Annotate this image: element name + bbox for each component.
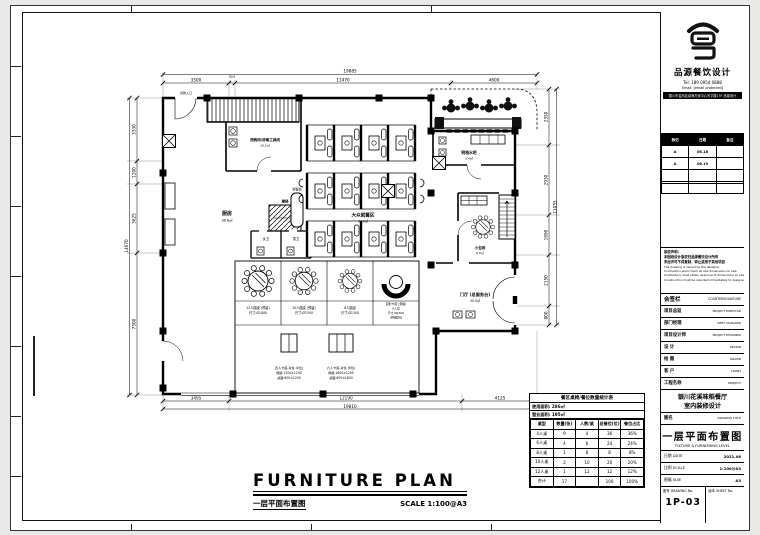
room-label-kitchen: 厨房 [222,210,232,217]
room-area-bar: 9.4㎡ [465,156,473,161]
meta-label: 比例 SCALE [664,465,685,471]
stats-cell: 6 [576,439,599,449]
drawing-number-label: 图号 DRAWING No. [663,488,703,493]
wc-rooms: 女卫 男卫 [251,229,311,258]
drawing-number-cell: 图号 DRAWING No. 1P-03 [661,487,706,523]
legend-caption: 6人位 [392,306,400,311]
goods-door: 货物入口 [175,90,197,119]
dim-left-4: 7500 [132,318,137,329]
sheet-number-label: 版本 SHEET No. [708,488,742,493]
sign-label-cn: 部门经理 [664,320,682,326]
company-tel: Tel: 189 0954 0888 [661,80,744,85]
drawing-number-value: 1P-03 [663,497,703,508]
stats-cell: 10 [576,458,599,468]
revision-row [662,170,744,182]
project-label-cn: 工程名称 [664,380,682,386]
stats-cell: 4 [553,439,576,449]
room-label-hall: 门厅 (总服务台) [460,291,490,298]
bar-room: 明档水吧 9.4㎡ [433,131,515,179]
dim-right-total: 11055 [553,200,558,214]
legend-caption: 8人圆桌 [344,305,356,310]
notes-panel: 版权声明: 本图纸设计版权归品源餐饮设计所有 未经许可不得复制、转让或用于其他项… [661,248,744,294]
stats-row: 合计17100100% [531,477,644,487]
edge-tick [11,206,21,207]
legend-caption: 桌面:600×1200 [277,375,301,380]
meta-row-size: 图幅 SIZEA3 [661,475,744,487]
drawing-title-label-en: DRAWING TITLE [717,416,741,420]
sign-label-cn: 绘 图 [664,356,674,362]
sign-label-cn: 项目总监 [664,308,682,314]
booth-seat [387,125,415,161]
booth-seat [306,221,334,257]
revision-cell: A [662,146,689,158]
project-label-row: 工程名称 PROJECT [661,378,744,390]
dim-top-total: 19885 [343,69,357,74]
revision-cell: A [662,158,689,170]
floor-plan: 19885 3500 315 11470 4600 14670 3330 120… [123,53,643,433]
terrace-area [431,89,537,133]
stats-cell: 24 [598,439,621,449]
edge-tick [131,524,132,530]
drawing-title-label-row: 图名 DRAWING TITLE [661,413,744,425]
stats-header: 数量(张) [553,420,576,430]
revision-cell: 06.18 [689,146,716,158]
sign-label-en: DEPT. MANAGER [717,321,741,325]
edge-tick [431,6,432,12]
stats-cell: 1 [553,448,576,458]
sign-label-en: DESIGN [730,345,741,349]
drawing-sheet: 19885 3500 315 11470 4600 14670 3330 120… [10,5,750,531]
legend-caption: 桌面:600×1800 [329,375,353,380]
legend-caption: 六人卡座-对坐 (6位) [327,365,355,370]
drawing-title-cn: 一层平面布置图 [661,425,744,443]
outdoor-table [480,99,498,112]
room-label-goods: 货物入口 [180,90,192,95]
dim-left-3: 3625 [132,213,137,224]
stats-header: 餐位占比 [621,420,644,430]
stats-cell: 12 [576,467,599,477]
legend-caption: 尺寸:Ø1500 [295,310,313,315]
stats-cell: 合计 [531,477,554,487]
stats-row: 8人桌1888% [531,448,644,458]
revision-cell [689,170,716,182]
edge-tick [11,66,21,67]
room-area-dishwash: 16.5㎡ [260,143,270,148]
stats-cell: 12% [621,467,644,477]
booth-seat [333,221,361,257]
stats-cell: 100 [598,477,621,487]
stats-area-2: 营业面积: 195㎡ [530,411,644,419]
sign-label-en: PROJECT DESIGNER [713,333,741,337]
room-label-stair: 楼梯 [282,199,289,204]
revision-header: 标记 [662,135,689,146]
edge-tick [491,524,492,530]
room-area-hall: 30.0㎡ [470,298,481,303]
booth-seat [333,173,361,209]
meta-value: 2021.06 [724,454,741,459]
legend-caption: 12人圆桌 (预留) [246,305,270,310]
entrance-hall: 门厅 (总服务台) 30.0㎡ [436,261,517,325]
stats-cell [576,477,599,487]
project-name-line1: 银川花溪味稻餐厅 [661,393,744,402]
sign-row-client: 客 户CLIENT [661,366,744,378]
sign-label-en: PROJECT DIRECTOR [713,309,741,313]
stats-cell: 10人桌 [531,458,554,468]
stats-cell: 36 [598,429,621,439]
left-door [161,341,183,361]
sign-row-director: 项目总监PROJECT DIRECTOR [661,306,744,318]
room-label-wc-w: 女卫 [263,236,270,241]
booth-seat [360,125,388,161]
room-label-wc-m: 男卫 [293,236,300,241]
dim-right-5: 800 [544,311,549,319]
edge-tick [11,136,21,137]
meta-row-date: 日期 DATE2021.06 [661,451,744,463]
edge-tick [11,276,21,277]
legend-caption: 10人圆桌 (预留) [292,305,316,310]
legend-caption: 弧形卡座 (预留) [386,301,407,306]
revision-cell [716,158,743,170]
meta-label: 图幅 SIZE [664,477,681,483]
dim-top-3: 11470 [336,78,350,83]
dim-bottom-total: 19810 [343,404,357,409]
outdoor-table [461,97,479,110]
company-panel: 品源餐饮设计 Tel: 189 0954 0888 Email: [email … [661,12,744,134]
booth-seat [387,221,415,257]
cashier-counter: 收银台 [291,187,303,228]
drawing-title-label-cn: 图名 [664,415,673,421]
room-label-cashier: 收银台 [292,187,302,192]
stats-cell: 4人桌 [531,429,554,439]
stats-cell: 8人桌 [531,448,554,458]
dim-bottom-3: 4125 [495,396,506,401]
stats-header: 人数/桌 [576,420,599,430]
room-label-dining: 大众就餐区 [352,212,375,219]
sheet-footer: FURNITURE PLAN 一层平面布置图 SCALE 1:100@A3 [253,471,467,510]
footer-subtitle-cn: 一层平面布置图 [253,498,306,510]
dim-top-1: 3500 [191,78,202,83]
stats-cell: 12人桌 [531,467,554,477]
stats-header: 总餐位(位) [598,420,621,430]
private-room: 小包间 6.6㎡ [456,193,515,263]
sign-label-cn: 设 计 [664,344,674,350]
company-email: Email: [email protected] [661,86,744,90]
booth-rows: 大众就餐区 94.0㎡ [299,125,424,257]
stats-cell: 8 [598,448,621,458]
footer-bar [253,494,467,497]
legend-caption: 定制软包 [390,315,402,320]
dim-right-4: 2150 [544,275,549,286]
sign-label-cn: 项目设计师 [664,332,686,338]
stats-row: 6人桌462424% [531,439,644,449]
revision-cell [716,146,743,158]
room-area-private: 6.6㎡ [476,250,484,255]
outdoor-table [442,99,460,112]
legend-caption: 尺寸:Ø1600 [388,310,405,315]
dim-left-total: 14670 [124,239,129,253]
dim-right-2: 2930 [544,174,549,185]
edge-tick [11,346,21,347]
sheet-number-cell: 版本 SHEET No. [706,487,744,523]
stats-row: 10人桌2102020% [531,458,644,468]
legend-caption: 尺寸:Ø1300 [341,310,359,315]
room-area-kitchen: 38.6㎡ [222,218,234,223]
sign-row-designer: 项目设计师PROJECT DESIGNER [661,330,744,342]
stats-cell: 6人桌 [531,439,554,449]
room-label-dishwash: 洗碗间/消毒工具间 [250,137,280,142]
edge-tick [11,476,21,477]
dim-left-2: 1200 [132,167,137,178]
stats-header: 桌型 [531,420,554,430]
sign-row-manager: 部门经理DEPT. MANAGER [661,318,744,330]
stats-cell: 17 [553,477,576,487]
stair-strip [207,98,299,122]
legend-caption: 规格:1800×1200 [328,370,354,375]
stats-cell: 8% [621,448,644,458]
dim-top-2: 315 [229,75,235,79]
revision-table: 标记 日期 备注 A06.18 A06.19 [661,134,744,184]
stats-cell: 24% [621,439,644,449]
room-label-private: 小包间 [474,245,486,250]
drawing-title-en: FIXTURE & FURNISHING LEVEL [661,444,744,450]
countersignature-label-en: COUNTERSIGNATURE [708,297,741,301]
drawing-title-panel: 一层平面布置图 FIXTURE & FURNISHING LEVEL [661,425,744,451]
countersignature-header: 会签栏 COUNTERSIGNATURE [661,294,744,306]
revision-cell [716,170,743,182]
sign-row-design: 设 计DESIGN [661,342,744,354]
legend-caption: 规格:1200×1200 [276,370,302,375]
booth-seat [360,221,388,257]
revision-header: 备注 [716,135,743,146]
plot-stamp [33,336,35,396]
booth-seat [306,173,334,209]
countersignature-label-cn: 会签栏 [664,295,681,303]
stats-cell: 2 [553,458,576,468]
revision-header: 日期 [689,135,716,146]
kitchen-room: 厨房 38.6㎡ [165,183,233,245]
revision-row: A06.18 [662,146,744,158]
project-name: 银川花溪味稻餐厅 室内装修设计 [661,390,744,413]
title-block-spacer [661,184,744,248]
drawing-number-panel: 图号 DRAWING No. 1P-03 版本 SHEET No. [661,487,744,523]
company-name: 品源餐饮设计 [661,66,744,78]
stats-cell: 20 [598,458,621,468]
stats-row: 12人桌1121212% [531,467,644,477]
note-line: Construction must be reported immediatel… [664,278,741,282]
revision-row: A06.19 [662,158,744,170]
legend-caption: 四人卡座-对坐 (4位) [275,365,303,370]
project-name-line2: 室内装修设计 [661,402,744,411]
meta-value: A3 [735,478,741,483]
dim-right-3: 1690 [544,229,549,240]
booth-seat [306,125,334,161]
meta-value: 1:100@A3 [720,466,741,471]
sign-row-drawn: 绘 图DRAWN [661,354,744,366]
revision-cell [662,170,689,182]
sign-label-en: CLIENT [731,369,741,373]
edge-tick [311,524,312,530]
stats-cell: 1 [553,467,576,477]
outdoor-table [499,97,517,110]
legend-caption: 尺寸:Ø1800 [249,310,267,315]
footer-scale: SCALE 1:100@A3 [400,500,467,508]
company-address: 银川市金凤区阅海万家中心写字楼15F 品源设计 [663,92,742,99]
stats-cell: 20% [621,458,644,468]
room-label-bar: 明档水吧 [461,150,476,155]
dim-left-1: 3330 [132,124,137,135]
sign-label-en: DRAWN [730,357,741,361]
dim-top-4: 4600 [489,78,500,83]
meta-label: 日期 DATE [664,453,683,459]
stats-title: 餐区桌椅/餐位数量统计表 [530,394,644,403]
title-block: 品源餐饮设计 Tel: 189 0954 0888 Email: [email … [660,12,744,523]
stats-cell: 8 [576,448,599,458]
footer-title: FURNITURE PLAN [253,471,467,492]
stats-cell: 36% [621,429,644,439]
stats-header-row: 桌型 数量(张) 人数/桌 总餐位(位) 餐位占比 [531,420,644,430]
stats-cell: 12 [598,467,621,477]
seating-stats-table: 餐区桌椅/餐位数量统计表 使用面积: 286㎡ 营业面积: 195㎡ 桌型 数量… [529,393,645,488]
meta-row-scale: 比例 SCALE1:100@A3 [661,463,744,475]
dim-right-1: 2350 [544,111,549,122]
revision-cell: 06.19 [689,158,716,170]
edge-tick [11,416,21,417]
round-table [471,216,494,238]
booth-seat [333,125,361,161]
stats-row: 4人桌943636% [531,429,644,439]
edge-tick [131,6,132,12]
room-area-dining: 94.0㎡ [358,219,369,224]
project-label-en: PROJECT [728,381,741,385]
stats-cell: 100% [621,477,644,487]
stats-cell: 4 [576,429,599,439]
page: { "company": { "name": "品源餐饮设计", "tel": … [0,0,760,535]
pinyuan-logo [685,18,721,60]
stats-cell: 9 [553,429,576,439]
sign-label-cn: 客 户 [664,368,674,374]
stats-area-1: 使用面积: 286㎡ [530,403,644,411]
furniture-legend: 12人圆桌 (预留) 尺寸:Ø1800 10人圆桌 (预留) 尺寸:Ø1500 … [235,261,419,393]
